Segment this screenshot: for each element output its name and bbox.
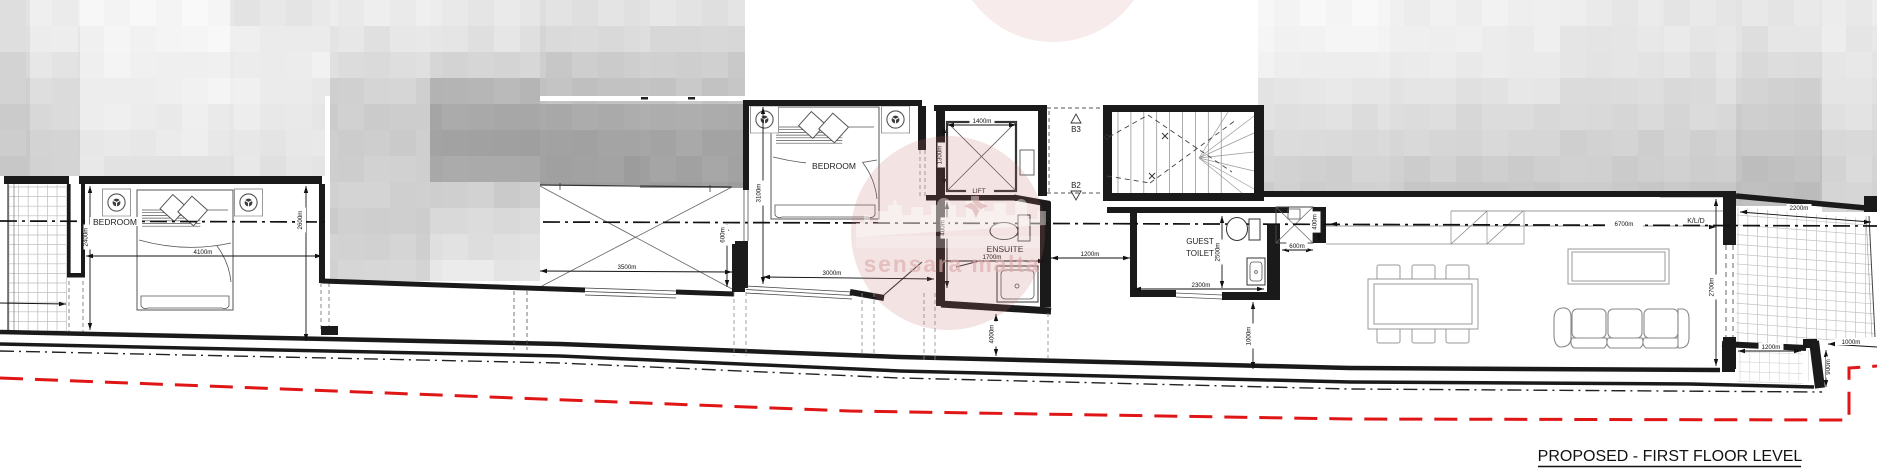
svg-text:3100m: 3100m: [756, 184, 763, 203]
svg-text:1400m: 1400m: [973, 118, 992, 125]
svg-text:6700m: 6700m: [1615, 221, 1634, 228]
svg-text:BEDROOM: BEDROOM: [93, 217, 137, 227]
svg-text:1200m: 1200m: [1762, 344, 1781, 351]
svg-text:1000m: 1000m: [1842, 339, 1861, 346]
svg-text:2500m: 2500m: [1215, 243, 1222, 262]
svg-text:2200m: 2200m: [1790, 205, 1809, 212]
svg-text:2700m: 2700m: [1709, 278, 1716, 297]
svg-text:2300m: 2300m: [1192, 282, 1211, 289]
svg-text:3500m: 3500m: [618, 264, 637, 271]
svg-text:1000m: 1000m: [1246, 327, 1253, 346]
svg-text:1200m: 1200m: [1081, 251, 1100, 258]
svg-text:TOILET: TOILET: [1186, 249, 1214, 258]
svg-text:2600m: 2600m: [297, 211, 304, 230]
svg-text:4100m: 4100m: [194, 249, 213, 256]
svg-text:3000m: 3000m: [823, 270, 842, 277]
svg-text:PROPOSED - FIRST FLOOR LEVEL: PROPOSED - FIRST FLOOR LEVEL: [1538, 448, 1803, 465]
svg-text:2400m: 2400m: [83, 228, 90, 247]
svg-text:600m: 600m: [1289, 243, 1304, 250]
svg-text:K/L/D: K/L/D: [1687, 218, 1705, 225]
svg-text:4000m: 4000m: [989, 325, 996, 344]
svg-text:B2: B2: [1071, 181, 1081, 190]
svg-text:900m: 900m: [1825, 359, 1832, 374]
svg-text:GUEST: GUEST: [1186, 237, 1214, 246]
svg-text:600m: 600m: [720, 227, 727, 242]
svg-text:B3: B3: [1071, 125, 1081, 134]
svg-text:400m: 400m: [1312, 214, 1319, 229]
svg-text:BEDROOM: BEDROOM: [812, 161, 856, 171]
svg-text:sensara malta: sensara malta: [864, 251, 1041, 277]
